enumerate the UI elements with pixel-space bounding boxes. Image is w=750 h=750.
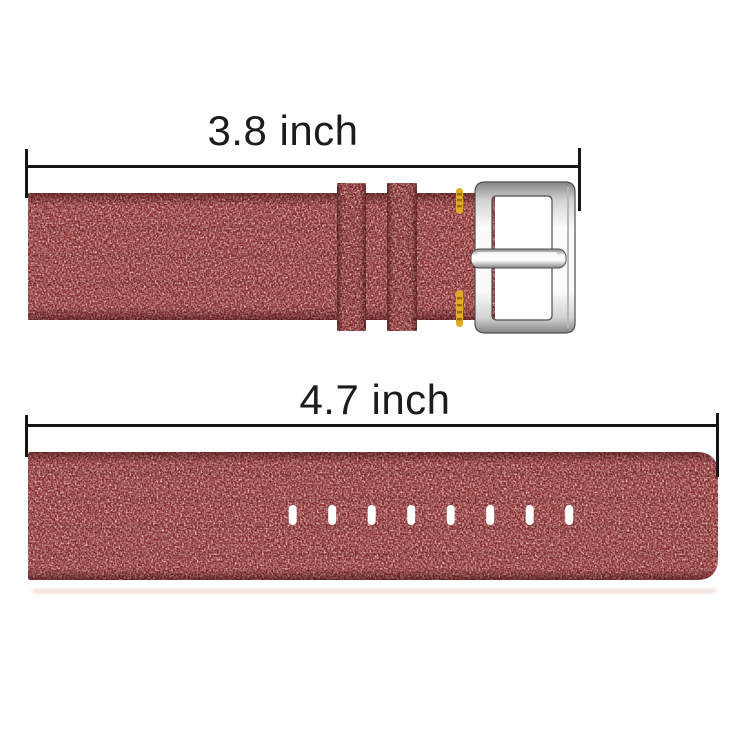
gold-stitch bbox=[456, 188, 463, 214]
top-strap-length-label: 3.8 inch bbox=[133, 110, 433, 152]
buckle-prong bbox=[471, 249, 566, 268]
top-dimension-tick-right bbox=[578, 148, 581, 211]
buckle-strap-piece bbox=[28, 181, 495, 333]
gold-stitch bbox=[456, 290, 463, 327]
strap-hole bbox=[368, 505, 376, 525]
strap-hole bbox=[565, 505, 573, 525]
bottom-dimension-line bbox=[26, 424, 719, 427]
strap-hole bbox=[407, 505, 415, 525]
holes-strap-piece bbox=[28, 452, 719, 580]
bottom-strap-length-label: 4.7 inch bbox=[225, 379, 525, 421]
strap-shadow bbox=[32, 589, 716, 593]
top-dimension-line bbox=[26, 165, 578, 168]
bottom-dimension-tick-right bbox=[716, 413, 719, 477]
keeper-loop bbox=[387, 183, 417, 331]
strap-hole bbox=[289, 505, 297, 525]
keeper-loop bbox=[337, 183, 366, 331]
watch-band-size-diagram: 3.8 inch bbox=[0, 0, 750, 750]
strap-fabric bbox=[28, 193, 495, 320]
watch-buckle bbox=[468, 178, 583, 338]
strap-hole bbox=[328, 505, 336, 525]
buckle-prong-highlight bbox=[477, 252, 557, 256]
strap-hole bbox=[486, 505, 494, 525]
bottom-dimension-tick-left bbox=[25, 415, 28, 457]
top-dimension-tick-left bbox=[25, 149, 28, 198]
strap-hole bbox=[447, 505, 455, 525]
strap-hole bbox=[526, 505, 534, 525]
